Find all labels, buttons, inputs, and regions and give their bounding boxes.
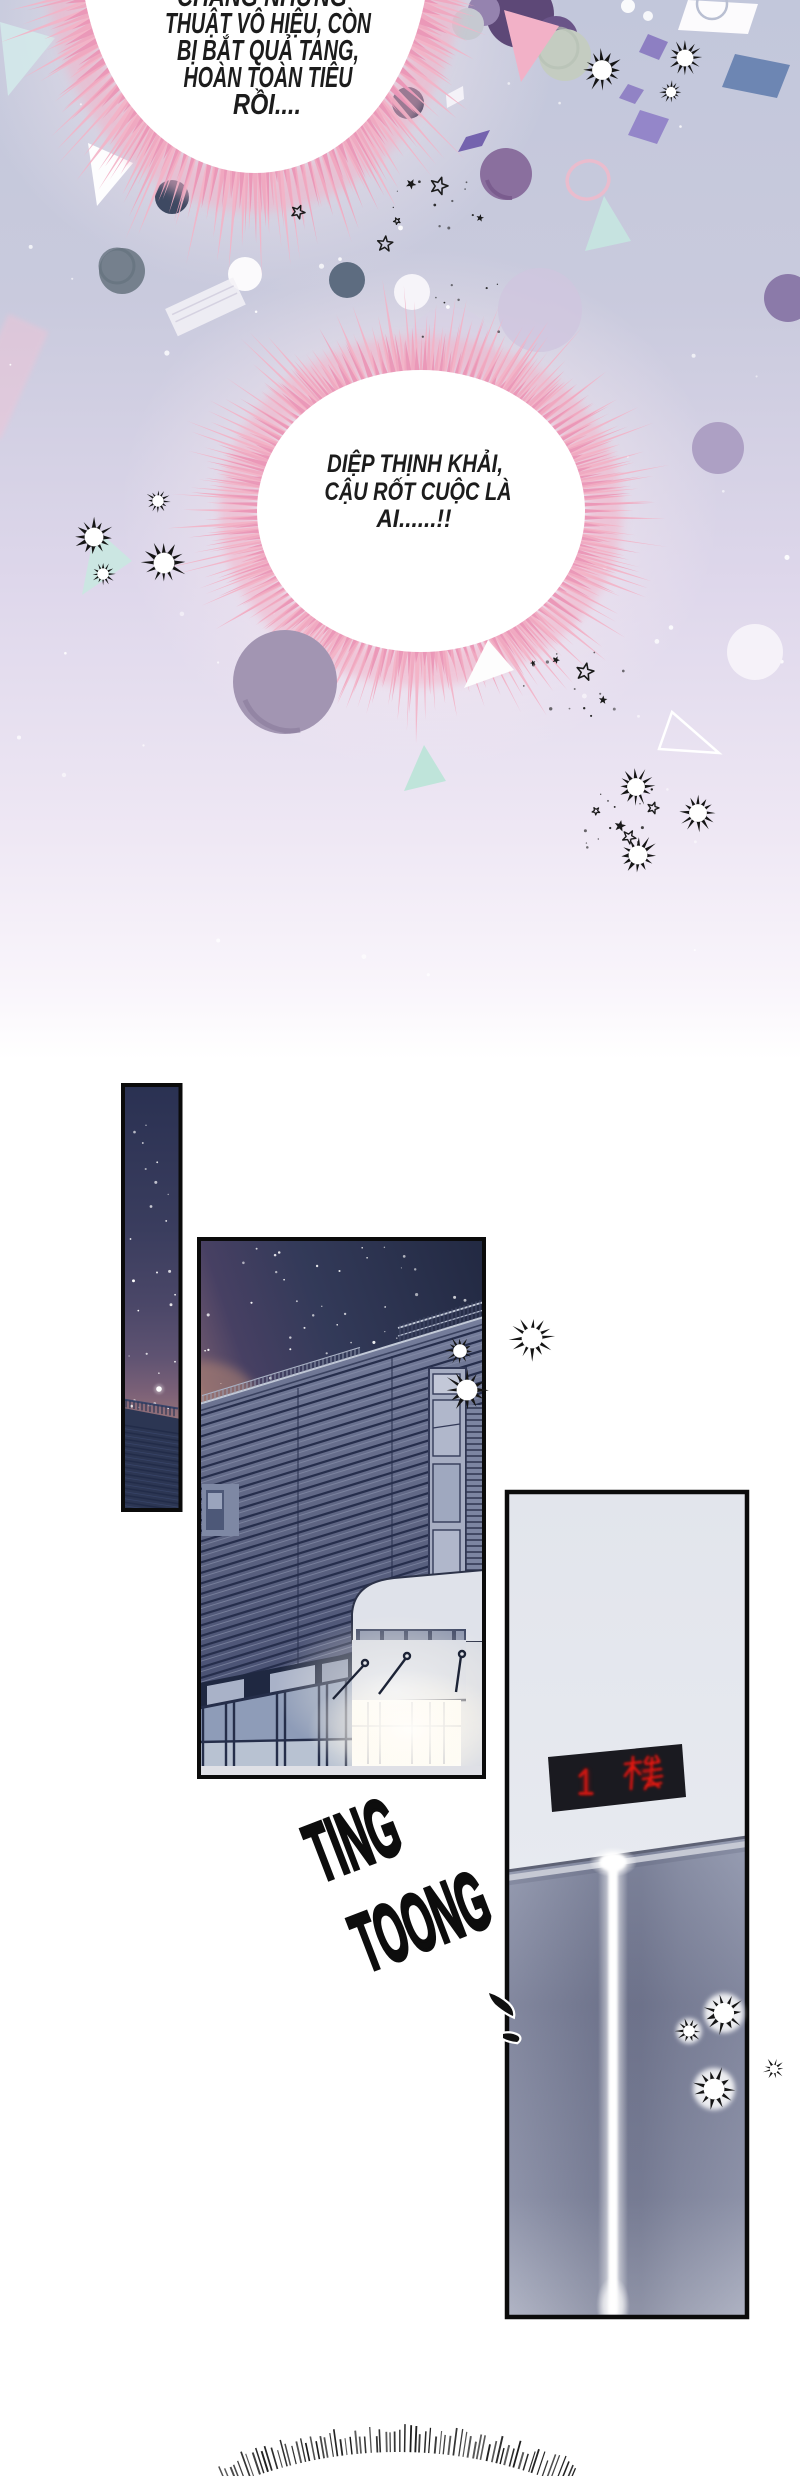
svg-text:CẬU RỐT CUỘC LÀ: CẬU RỐT CUỘC LÀ (325, 476, 512, 506)
svg-text:DIỆP THỊNH KHẢI,: DIỆP THỊNH KHẢI, (327, 448, 503, 478)
svg-text:RỒI....: RỒI.... (233, 87, 301, 121)
svg-text:AI......!!: AI......!! (376, 505, 452, 533)
